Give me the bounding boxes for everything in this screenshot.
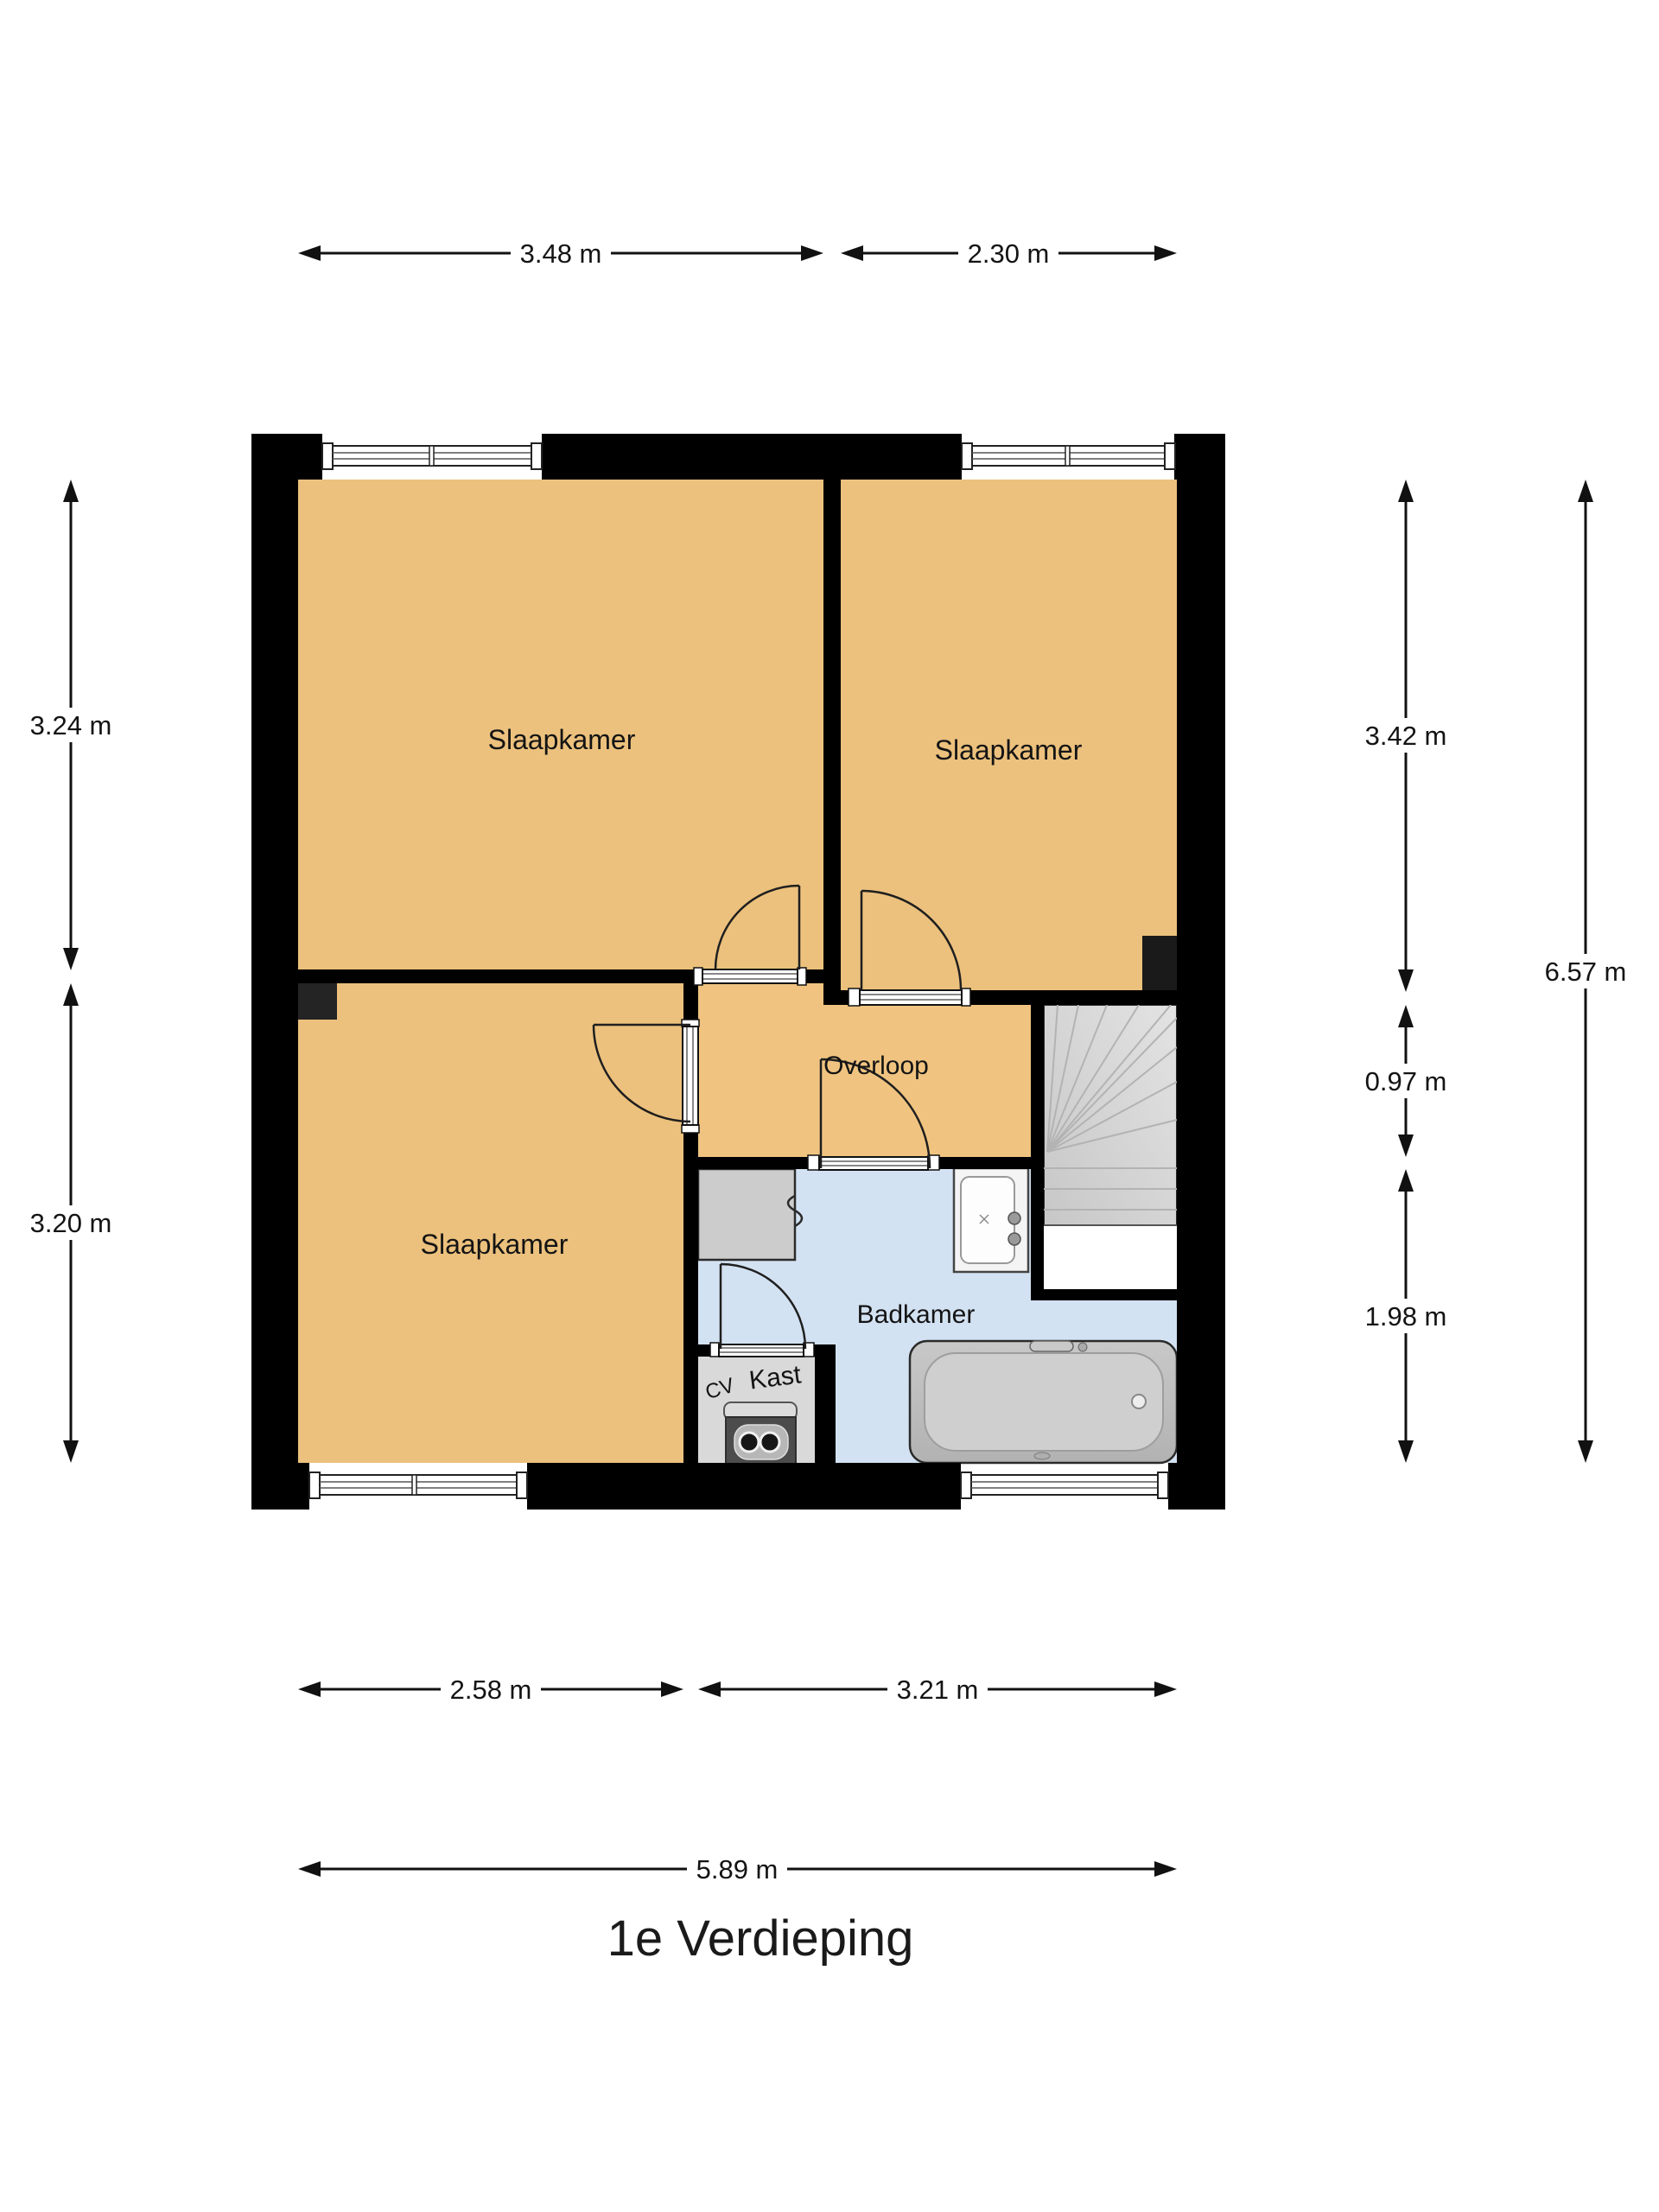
dim-label-left-upper: 3.24 m: [30, 710, 112, 741]
dim-label-top-left: 3.48 m: [520, 238, 602, 269]
dim-label-left-lower: 3.20 m: [30, 1208, 112, 1238]
wall-v2-b: [683, 1132, 698, 1463]
bathtub-tap: [1078, 1343, 1087, 1351]
dim-label-right-lower: 1.98 m: [1365, 1301, 1447, 1332]
bedroom-bl-floor: [297, 983, 683, 1463]
wall-h3-b: [938, 1157, 1031, 1169]
wall-bottom-1: [251, 1463, 309, 1510]
sink-tap-2: [1008, 1233, 1020, 1245]
wall-v2-a: [683, 983, 698, 1021]
wall-h2-b: [969, 990, 1177, 1005]
wall-h1-a: [297, 969, 694, 983]
wall-pier: [297, 983, 337, 1020]
dim-label-top-right: 2.30 m: [968, 238, 1050, 269]
stairwell-void: [1044, 1225, 1177, 1289]
wall-closet-right: [815, 1357, 836, 1463]
wall-bottom-2: [527, 1463, 961, 1510]
dim-label-right-upper: 3.42 m: [1365, 721, 1447, 751]
wall-stairs-left: [1031, 1005, 1044, 1300]
room-label-bedroom-bl: Slaapkamer: [421, 1229, 569, 1260]
dim-label-bottom-total: 5.89 m: [696, 1854, 779, 1885]
bathtub-drain: [1132, 1395, 1146, 1408]
window-top-left: [322, 443, 542, 469]
wall-bedrooms-divider: [823, 480, 841, 1005]
room-label-bedroom-tr: Slaapkamer: [935, 734, 1083, 766]
dim-label-bottom-left: 2.58 m: [450, 1675, 532, 1705]
page-title: 1e Verdieping: [607, 1910, 914, 1967]
bathtub: [910, 1341, 1177, 1463]
dim-label-bottom-right: 3.21 m: [897, 1675, 979, 1705]
sink-basin: [961, 1177, 1014, 1263]
wall-stairs-bottom: [1031, 1289, 1177, 1300]
wall-h1-b: [806, 969, 823, 983]
wall-closet-top-b: [812, 1344, 836, 1357]
wall-left: [251, 434, 298, 1510]
dim-label-right-middle: 0.97 m: [1365, 1066, 1447, 1096]
wall-h3-a: [683, 1157, 810, 1169]
boiler-knob-2: [760, 1433, 779, 1452]
room-label-bathroom: Badkamer: [857, 1300, 976, 1329]
wall-right: [1177, 434, 1225, 1510]
floorplan-page: Slaapkamer Slaapkamer Slaapkamer Overloo…: [0, 0, 1659, 2212]
window-top-right: [962, 443, 1175, 469]
dim-label-right-total: 6.57 m: [1545, 957, 1627, 987]
landing-floor: [698, 1005, 1031, 1157]
cv-boiler: [724, 1402, 797, 1465]
shower-tray: [698, 1169, 795, 1260]
bathtub-basin: [925, 1353, 1163, 1451]
bathtub-handle: [1030, 1341, 1073, 1351]
room-label-bedroom-tl: Slaapkamer: [488, 724, 636, 755]
shower: [698, 1169, 802, 1260]
boiler-knob-1: [740, 1433, 759, 1452]
sink: [954, 1168, 1028, 1272]
room-label-landing: Overloop: [823, 1052, 929, 1080]
window-bottom-left: [309, 1472, 527, 1498]
wall-top-2: [542, 434, 962, 480]
window-bottom-right: [961, 1472, 1168, 1498]
wall-closet-top-a: [683, 1344, 712, 1357]
sink-tap-1: [1008, 1212, 1020, 1224]
bathtub-overflow: [1034, 1452, 1050, 1459]
floorplan-drawing: Slaapkamer Slaapkamer Slaapkamer Overloo…: [0, 0, 1659, 2212]
stairs: [1044, 1005, 1177, 1289]
wall-bottom-3: [1168, 1463, 1225, 1510]
